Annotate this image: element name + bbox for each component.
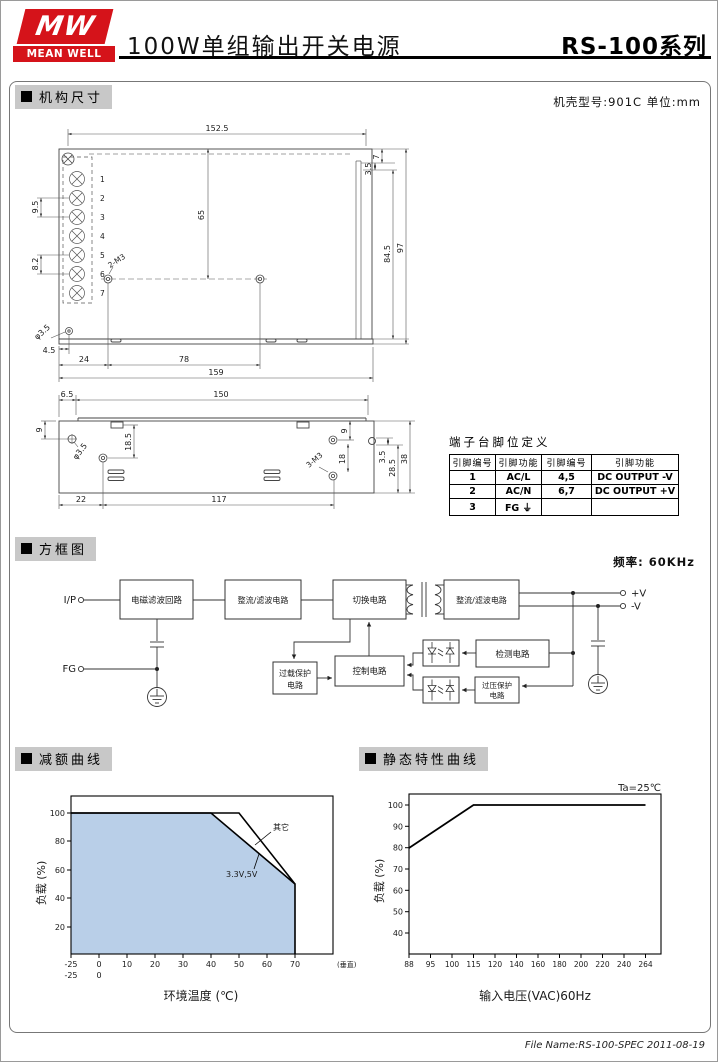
static-curve-chart: Ta=25℃ 100 90 80 70 60 50 40 88 95 100 1… bbox=[351, 781, 696, 1011]
xtick-row2: 0 bbox=[96, 971, 101, 980]
xtick: 240 bbox=[617, 960, 632, 969]
cell: 2 bbox=[450, 485, 496, 499]
series-3v3-5v-label: 3.3V,5V bbox=[226, 870, 258, 879]
rectifier2-label: 整流/滤波电路 bbox=[456, 595, 507, 605]
xtick: -25 bbox=[64, 960, 77, 969]
dim-9-5: 9.5 bbox=[31, 201, 40, 214]
xtick: 264 bbox=[638, 960, 653, 969]
ovp-label-2: 电路 bbox=[490, 690, 505, 700]
derating-chart: 100 80 60 40 20 -25 0 10 20 30 40 50 60 … bbox=[21, 781, 361, 1011]
cell: FG ⏚ bbox=[496, 499, 542, 516]
cell: 1 bbox=[450, 471, 496, 485]
table-row: 3 FG ⏚ bbox=[450, 499, 679, 516]
pin-3: 3 bbox=[100, 213, 105, 222]
pin-5: 5 bbox=[100, 251, 105, 260]
xtick: 50 bbox=[234, 960, 244, 969]
pin-table-header-row: 引脚编号 引脚功能 引脚编号 引脚功能 bbox=[450, 455, 679, 471]
dim-4-5: 4.5 bbox=[43, 346, 56, 355]
static-y-label: 负载 (%) bbox=[372, 859, 386, 904]
input-label: I/P bbox=[64, 595, 76, 606]
dim-6-5: 6.5 bbox=[61, 391, 74, 399]
pin-1: 1 bbox=[100, 175, 105, 184]
xtick: 120 bbox=[488, 960, 503, 969]
dim-18: 18 bbox=[338, 454, 347, 464]
emi-filter-label: 电磁滤波回路 bbox=[131, 595, 183, 606]
xtick: 10 bbox=[122, 960, 132, 969]
xtick: 100 bbox=[445, 960, 460, 969]
xtick: 95 bbox=[426, 960, 436, 969]
case-outline bbox=[59, 149, 373, 344]
cell: AC/L bbox=[496, 471, 542, 485]
datasheet-page: MW MEAN WELL 100W单组输出开关电源 RS-100系列 机构尺寸 … bbox=[0, 0, 718, 1062]
col-header: 引脚编号 bbox=[542, 455, 592, 471]
dim-78: 78 bbox=[179, 355, 189, 364]
fg-label: FG bbox=[62, 664, 76, 675]
xtick: 40 bbox=[206, 960, 216, 969]
xtick: 115 bbox=[466, 960, 481, 969]
table-row: 2 AC/N 6,7 DC OUTPUT +V bbox=[450, 485, 679, 499]
xtick: 88 bbox=[404, 960, 414, 969]
label-phi-3-5: φ3.5 bbox=[33, 323, 52, 342]
side-view-drawing: 6.5 150 9 18.5 φ3.5 9 18 3-M3 3.5 28.5 3… bbox=[21, 391, 441, 521]
static-x-label: 输入电压(VAC)60Hz bbox=[479, 988, 591, 1003]
pin-2: 2 bbox=[100, 194, 105, 203]
ytick: 80 bbox=[393, 844, 403, 853]
x-tick-labels: -25 0 10 20 30 40 50 60 70 -25 0 (垂直) bbox=[64, 960, 356, 980]
table-row: 1 AC/L 4,5 DC OUTPUT -V bbox=[450, 471, 679, 485]
xtick: 0 bbox=[96, 960, 101, 969]
ovp-label-1: 过压保护 bbox=[482, 680, 512, 690]
section-mech: 机构尺寸 bbox=[15, 85, 112, 109]
dim-22: 22 bbox=[76, 495, 86, 504]
derating-area-fill bbox=[71, 813, 295, 954]
xtick: 30 bbox=[178, 960, 188, 969]
title-underline bbox=[119, 56, 711, 59]
dim-65: 65 bbox=[197, 210, 206, 220]
x-tick-labels: 88 95 100 115 120 140 160 180 200 220 24… bbox=[404, 960, 653, 969]
dim-84-5: 84.5 bbox=[383, 245, 392, 263]
derating-x-label: 环境温度 (℃) bbox=[164, 988, 239, 1003]
dim-159: 159 bbox=[208, 368, 223, 377]
output-ground-icon bbox=[589, 675, 608, 694]
xtick: 180 bbox=[552, 960, 567, 969]
section-marker-icon bbox=[365, 753, 376, 764]
cell: 3 bbox=[450, 499, 496, 516]
cell bbox=[542, 499, 592, 516]
ytick: 100 bbox=[388, 801, 403, 810]
logo-name-bar: MEAN WELL bbox=[13, 46, 115, 62]
xtick-row2: -25 bbox=[64, 971, 77, 980]
pin-7: 7 bbox=[100, 289, 105, 298]
top-view-drawing: 1 2 3 4 5 6 7 bbox=[21, 111, 441, 391]
switching-label: 切换电路 bbox=[352, 595, 387, 606]
section-static: 静态特性曲线 bbox=[359, 747, 488, 771]
block-diagram: I/P FG 电磁滤波回路 整流/滤波电路 切换电路 整流/滤波电路 过载保护 … bbox=[21, 556, 711, 721]
dim-7: 7 bbox=[372, 154, 381, 159]
xtick: 140 bbox=[509, 960, 524, 969]
section-marker-icon bbox=[21, 543, 32, 554]
detect-label: 检测电路 bbox=[495, 649, 530, 660]
vneg-label: -V bbox=[631, 602, 641, 613]
logo-mw-text: MW bbox=[33, 11, 97, 42]
ytick: 60 bbox=[55, 866, 65, 875]
xtick: 60 bbox=[262, 960, 272, 969]
y-tick-labels: 100 90 80 70 60 50 40 bbox=[388, 801, 403, 938]
plot-box bbox=[409, 794, 661, 954]
logo-name-text: MEAN WELL bbox=[27, 48, 102, 60]
cell: AC/N bbox=[496, 485, 542, 499]
load-line bbox=[409, 805, 646, 848]
dim-8-2: 8.2 bbox=[31, 258, 40, 271]
cell: DC OUTPUT -V bbox=[592, 471, 679, 485]
ytick: 90 bbox=[393, 822, 403, 831]
dim-117: 117 bbox=[211, 495, 226, 504]
xtick: 70 bbox=[290, 960, 300, 969]
cell bbox=[592, 499, 679, 516]
mw-logo-icon: MW bbox=[17, 9, 114, 44]
ytick: 60 bbox=[393, 886, 403, 895]
pin-definition: 端子台脚位定义 引脚编号 引脚功能 引脚编号 引脚功能 1 AC/L 4,5 D… bbox=[449, 434, 679, 516]
axis-ticks bbox=[405, 805, 646, 958]
dim-38: 38 bbox=[400, 454, 409, 464]
ytick: 20 bbox=[55, 923, 65, 932]
xtick: 220 bbox=[595, 960, 610, 969]
rectifier1-label: 整流/滤波电路 bbox=[238, 595, 289, 605]
dim-9-left: 9 bbox=[35, 427, 44, 432]
dim-152-5: 152.5 bbox=[206, 124, 229, 133]
cell: 4,5 bbox=[542, 471, 592, 485]
pin-table-title: 端子台脚位定义 bbox=[449, 434, 679, 450]
dim-28-5: 28.5 bbox=[388, 459, 397, 477]
col-header: 引脚编号 bbox=[450, 455, 496, 471]
section-marker-icon bbox=[21, 753, 32, 764]
section-mech-label: 机构尺寸 bbox=[39, 87, 103, 106]
xtick: 160 bbox=[531, 960, 546, 969]
dim-150: 150 bbox=[213, 391, 228, 399]
xtick: 20 bbox=[150, 960, 160, 969]
control-label: 控制电路 bbox=[352, 666, 387, 677]
overload-label-1: 过载保护 bbox=[279, 668, 311, 678]
derating-y-label: 负载 (%) bbox=[34, 861, 48, 906]
fg-ground-icon bbox=[148, 688, 167, 707]
case-model-note: 机壳型号:901C 单位:mm bbox=[553, 94, 701, 110]
ytick: 70 bbox=[393, 865, 403, 874]
col-header: 引脚功能 bbox=[496, 455, 542, 471]
section-marker-icon bbox=[21, 91, 32, 102]
dim-24: 24 bbox=[79, 355, 89, 364]
cell: DC OUTPUT +V bbox=[592, 485, 679, 499]
vpos-label: +V bbox=[631, 589, 646, 600]
xtick: 200 bbox=[574, 960, 589, 969]
overload-label-2: 电路 bbox=[287, 680, 303, 690]
col-header: 引脚功能 bbox=[592, 455, 679, 471]
dim-18-5: 18.5 bbox=[124, 433, 133, 451]
section-static-label: 静态特性曲线 bbox=[383, 749, 479, 768]
cell: 6,7 bbox=[542, 485, 592, 499]
ytick: 100 bbox=[50, 809, 65, 818]
transformer-icon bbox=[407, 582, 441, 617]
footer-file-info: File Name:RS-100-SPEC 2011-08-19 bbox=[525, 1040, 705, 1051]
ytick: 80 bbox=[55, 837, 65, 846]
pin-4: 4 bbox=[100, 232, 105, 241]
y-tick-labels: 100 80 60 40 20 bbox=[50, 809, 65, 932]
dim-3-5-top: 3.5 bbox=[364, 163, 373, 176]
meanwell-logo: MW MEAN WELL bbox=[13, 9, 115, 61]
ytick: 40 bbox=[393, 929, 403, 938]
series-others-label: 其它 bbox=[273, 822, 289, 832]
pin-table: 引脚编号 引脚功能 引脚编号 引脚功能 1 AC/L 4,5 DC OUTPUT… bbox=[449, 454, 679, 516]
dim-9-right: 9 bbox=[340, 428, 349, 433]
dim-97: 97 bbox=[396, 243, 405, 253]
ytick: 40 bbox=[55, 894, 65, 903]
dim-3-5-side: 3.5 bbox=[378, 451, 387, 464]
ytick: 50 bbox=[393, 908, 403, 917]
section-derating: 减额曲线 bbox=[15, 747, 112, 771]
section-derating-label: 减额曲线 bbox=[39, 749, 103, 768]
ta-annotation: Ta=25℃ bbox=[617, 783, 661, 794]
